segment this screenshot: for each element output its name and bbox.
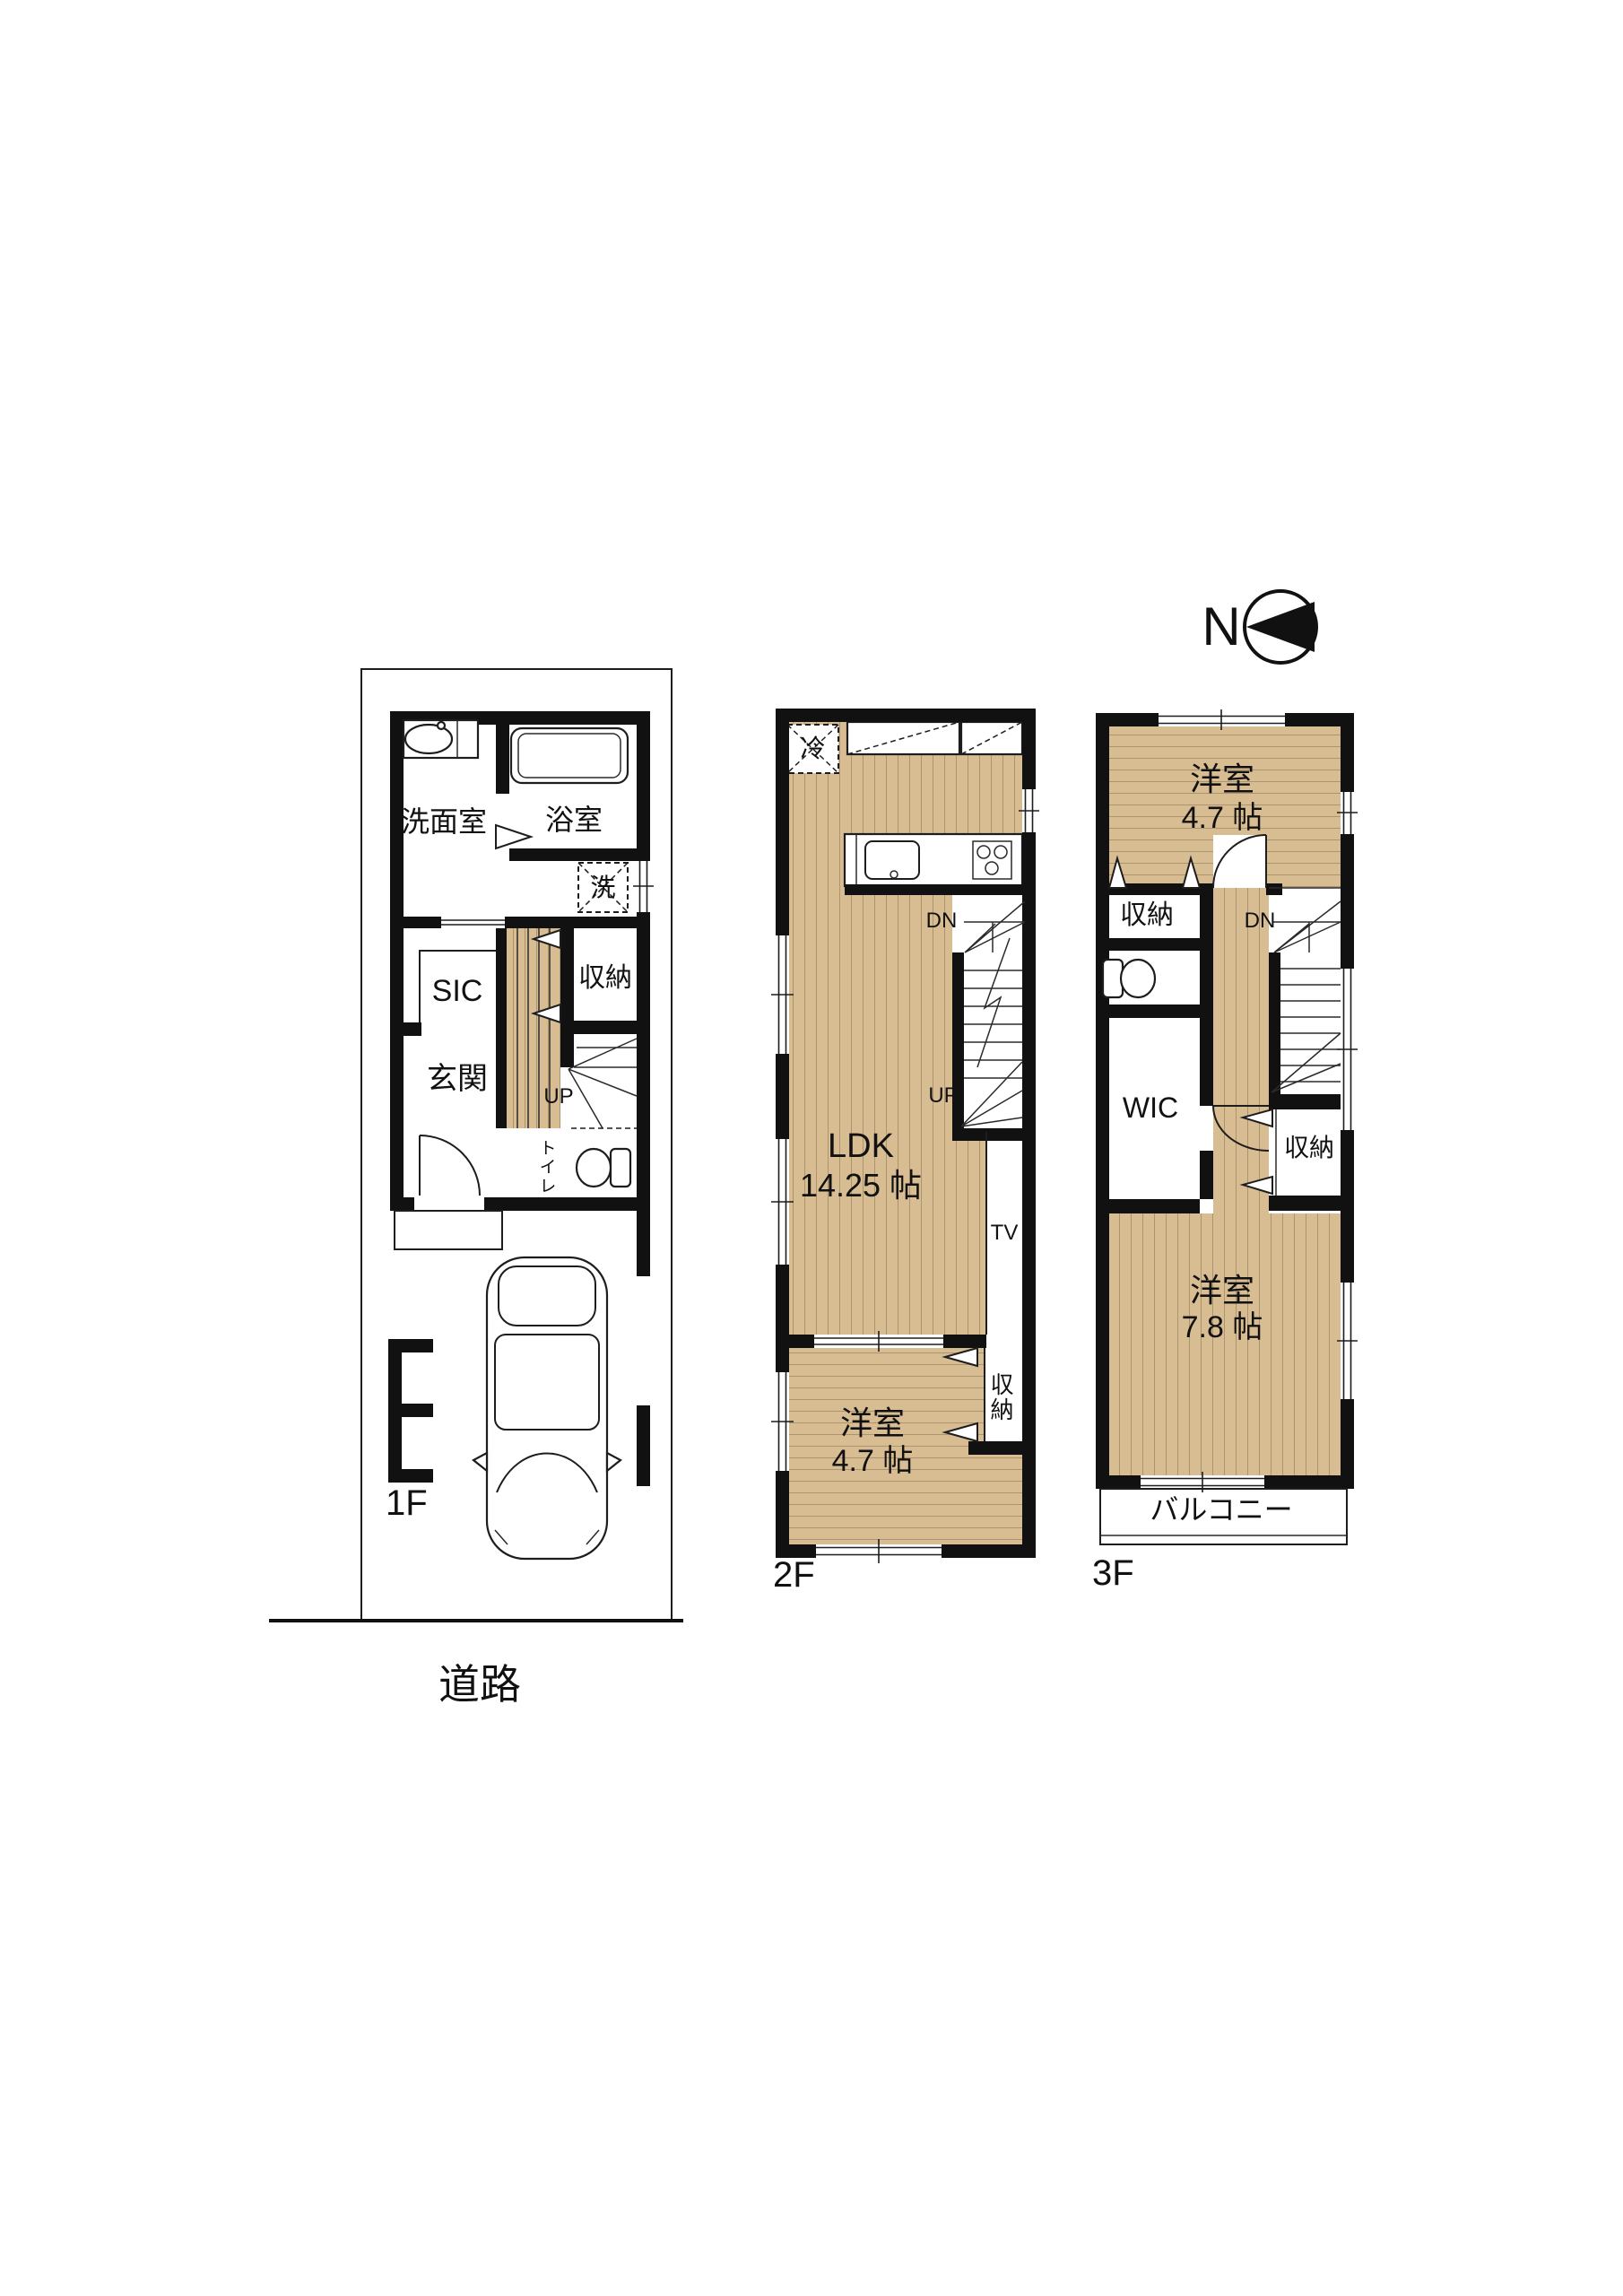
wall	[1096, 1004, 1213, 1018]
wall	[637, 711, 650, 861]
room-label-wic: WIC	[1116, 1090, 1185, 1126]
room-label-ldk: LDK	[811, 1126, 910, 1166]
floor-label-1f: 1F	[386, 1485, 457, 1521]
wall	[560, 1021, 637, 1034]
label-stairs-down-3f: DN	[1238, 908, 1281, 935]
bathtub-icon	[511, 728, 628, 783]
kitchen-front-wall	[845, 884, 1027, 895]
north-arrow-icon	[1245, 591, 1316, 663]
road-label: 道路	[404, 1656, 556, 1713]
car-icon	[473, 1257, 621, 1559]
room-size-bedroom-3f-south: 7.8 帖	[1166, 1310, 1279, 1344]
label-stairs-up-1f: UP	[536, 1083, 581, 1110]
room-label-storage-2f: 収納	[986, 1363, 1015, 1431]
floor-label-2f: 2F	[773, 1556, 845, 1594]
wall	[776, 709, 1036, 722]
wall	[1096, 1475, 1141, 1489]
room-label-storage-3f-north: 収納	[1114, 899, 1180, 933]
wall	[776, 1265, 789, 1372]
wall	[505, 917, 650, 928]
label-washer: 洗	[578, 863, 628, 912]
room-label-bathroom: 浴室	[536, 802, 612, 838]
wall	[942, 1544, 1036, 1558]
wall	[1269, 1196, 1354, 1211]
bedroom-3f-south-floor	[1109, 1213, 1341, 1475]
room-label-entrance: 玄関	[408, 1061, 507, 1097]
floor-plan-sheet: N 洗面室 浴室 洗 SIC 玄関 収納 UP トイレ 1F 冷 LDK 14.…	[0, 0, 1623, 2296]
toilet-icon	[1103, 960, 1155, 997]
wall	[968, 1441, 1036, 1455]
room-label-toilet: トイレ	[534, 1132, 558, 1202]
wall	[1266, 883, 1282, 895]
wall	[496, 725, 509, 794]
porch-step	[395, 1211, 502, 1249]
room-label-bedroom-2f: 洋室	[832, 1404, 913, 1443]
wall	[776, 1054, 789, 1139]
toilet-icon	[577, 1149, 630, 1187]
wall	[776, 1335, 814, 1348]
room-label-bedroom-3f-north: 洋室	[1182, 760, 1263, 799]
label-stairs-up-2f: UP	[922, 1083, 965, 1109]
vanity-sink-icon	[404, 720, 478, 758]
wall	[1269, 952, 1280, 1094]
floor-label-3f: 3F	[1092, 1554, 1164, 1592]
bath-door-marker	[496, 825, 531, 848]
room-size-bedroom-3f-north: 4.7 帖	[1166, 801, 1279, 835]
door-swing-area	[1213, 835, 1267, 888]
label-fridge: 冷	[787, 725, 838, 773]
wall	[1022, 709, 1036, 789]
wall	[390, 1197, 414, 1211]
room-label-storage-3f-mid: 収納	[1277, 1132, 1341, 1164]
wall	[390, 711, 404, 1211]
wall	[952, 1128, 1025, 1141]
room-size-ldk: 14.25 帖	[801, 1168, 921, 1204]
wall	[1096, 1199, 1200, 1213]
sliding-door	[441, 917, 505, 928]
entrance-door-arc	[420, 1135, 480, 1196]
wall	[1096, 938, 1213, 951]
kitchen-counter-icon	[845, 834, 1022, 886]
room-label-bedroom-3f-south: 洋室	[1182, 1271, 1263, 1310]
wall	[560, 928, 574, 1067]
room-size-bedroom-2f: 4.7 帖	[816, 1444, 929, 1478]
wall	[390, 917, 441, 928]
wall	[637, 1405, 650, 1486]
hall-floor-3f	[1213, 888, 1269, 1213]
wall	[1264, 1475, 1354, 1489]
wall	[1269, 1094, 1342, 1109]
wall	[1096, 713, 1109, 1489]
room-label-storage-1f: 収納	[572, 961, 638, 996]
garage-wall	[388, 1469, 433, 1483]
wall	[637, 1211, 650, 1276]
wall	[1341, 834, 1354, 969]
label-tv: TV	[985, 1220, 1024, 1247]
wall	[1200, 883, 1213, 1106]
wall	[390, 1022, 421, 1036]
label-stairs-down-2f: DN	[920, 908, 963, 935]
wall	[496, 928, 507, 1128]
window	[633, 861, 654, 912]
garage-wall	[388, 1339, 433, 1352]
wall	[1200, 1151, 1213, 1199]
wall	[637, 912, 650, 1211]
wall	[943, 1335, 986, 1348]
room-label-sic: SIC	[414, 973, 500, 1009]
upper-cabinets	[847, 722, 1022, 754]
wall	[1341, 713, 1354, 792]
room-label-balcony: バルコニー	[1146, 1492, 1297, 1526]
wall	[509, 848, 637, 861]
compass-label: N	[1198, 594, 1245, 660]
garage-wall	[388, 1404, 433, 1417]
room-label-washroom: 洗面室	[395, 804, 493, 839]
wall	[484, 1197, 650, 1211]
